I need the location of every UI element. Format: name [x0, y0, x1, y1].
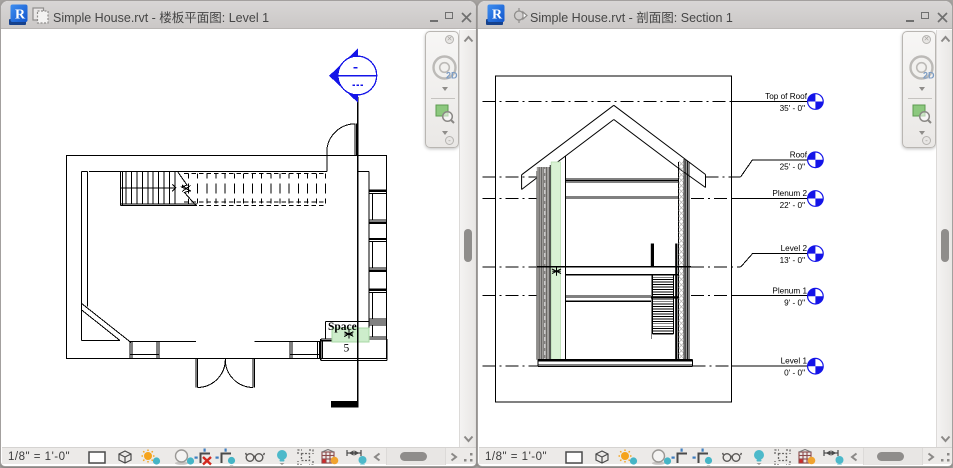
svg-text:Level 1: Level 1 — [781, 357, 808, 366]
svg-text:Top of Roof: Top of Roof — [765, 92, 808, 101]
svg-text:R: R — [15, 8, 26, 23]
svg-text:35' - 0": 35' - 0" — [780, 104, 805, 113]
svg-text:22' - 0": 22' - 0" — [780, 201, 805, 210]
svg-text:Roof: Roof — [790, 150, 808, 159]
svg-text:2D: 2D — [446, 71, 458, 81]
svg-text:Plenum 1: Plenum 1 — [772, 287, 807, 296]
svg-text:9' - 0": 9' - 0" — [784, 299, 805, 308]
svg-text:0' - 0": 0' - 0" — [784, 369, 805, 378]
svg-text:Level 2: Level 2 — [781, 244, 808, 253]
svg-text:Space: Space — [328, 321, 357, 333]
svg-text:R: R — [492, 8, 503, 23]
svg-text:5: 5 — [344, 343, 350, 355]
svg-text:Plenum 2: Plenum 2 — [772, 189, 807, 198]
svg-text:2D: 2D — [923, 71, 935, 81]
svg-text:13' - 0": 13' - 0" — [780, 256, 805, 265]
svg-text:25' - 0": 25' - 0" — [780, 162, 805, 171]
